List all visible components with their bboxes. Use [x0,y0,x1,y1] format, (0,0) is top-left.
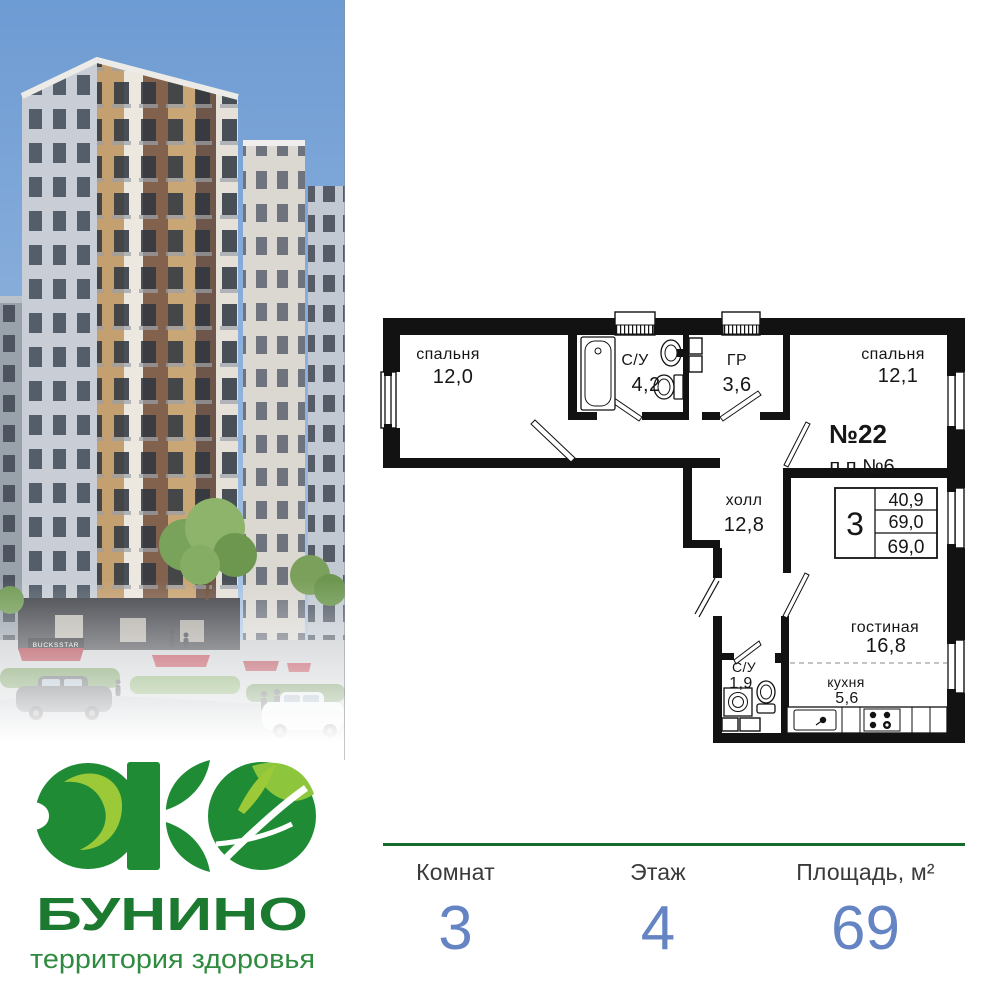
brand-tagline: территория здоровья [30,944,315,974]
kitchen-counter [787,707,947,733]
floorplan: 3 40,9 69,0 69,0 №22 п.п.№6 спальня 12,0… [380,305,970,750]
window-living-2 [947,640,964,693]
window-living-1 [947,488,964,548]
photo-edge [344,0,345,760]
window-bedroom2 [947,372,964,430]
building-photo: BUCKSSTAR [0,0,345,1000]
stat-floor-value: 4 [588,898,728,960]
stat-rooms-value: 3 [383,898,528,960]
label-hall: холл [726,492,763,509]
label-kitchen: кухня [827,674,865,690]
entry-label: п.п.№6 [829,456,894,478]
door-bedroom1 [531,420,575,462]
table-living-area: 40,9 [888,490,923,510]
table-rooms-count: 3 [846,506,864,542]
apartment-number: №22 [829,419,887,449]
stat-floor-label: Этаж [588,859,728,886]
doors [531,391,810,664]
label-bath1: С/У [621,352,649,369]
area-bedroom2: 12,1 [878,365,919,387]
area-bath1: 4,2 [631,374,660,396]
label-dressing: ГР [727,352,747,369]
sink-bath1 [661,340,683,366]
area-bath2: 1,9 [729,675,752,692]
area-living: 16,8 [866,635,907,657]
table-area: 69,0 [888,512,923,532]
table-total-area: 69,0 [888,537,925,558]
white-fade [0,580,345,770]
label-bath2: С/У [732,659,756,675]
apartment-listing-card: BUCKSSTAR [0,0,1000,1000]
area-hall: 12,8 [724,514,765,536]
area-bedroom1: 12,0 [433,366,474,388]
washing-machine [724,688,752,716]
bathtub [581,337,615,410]
floorplan-panel: 3 40,9 69,0 69,0 №22 п.п.№6 спальня 12,0… [380,305,970,750]
area-summary-table: 3 40,9 69,0 69,0 [835,488,937,558]
stat-rooms-label: Комнат [383,859,528,886]
toilet-bath2 [757,681,775,713]
window-bedroom1 [381,372,396,428]
stat-rooms: Комнат 3 [383,859,528,960]
door-living [783,573,809,618]
label-living: гостиная [851,619,919,636]
brand-name: БУНИНО [36,888,308,940]
stats-row: Комнат 3 Этаж 4 Площадь, м² 69 [383,843,965,993]
area-dressing: 3,6 [722,374,751,396]
label-bedroom2: спальня [861,346,925,363]
area-kitchen: 5,6 [835,690,858,707]
divider-line [383,843,965,846]
door-bedroom2 [784,422,810,467]
building-photo-panel: BUCKSSTAR [0,0,345,1000]
stat-floor: Этаж 4 [588,859,728,960]
door-entrance [695,578,719,617]
label-bedroom1: спальня [416,346,480,363]
stat-area-label: Площадь, м² [773,859,958,886]
stat-area: Площадь, м² 69 [773,859,958,960]
stat-area-value: 69 [773,898,958,960]
